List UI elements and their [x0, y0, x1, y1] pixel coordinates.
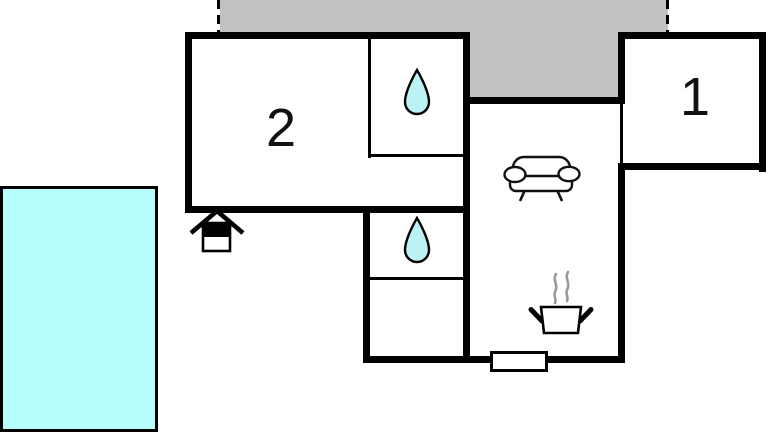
wall-bathroom-top-bottom — [368, 154, 465, 157]
wall-left-main — [185, 32, 192, 213]
wall-right-vertical-lower — [618, 163, 625, 363]
wall-center-vertical — [463, 32, 470, 363]
floor-plan: 2 1 — [0, 0, 768, 432]
entrance-house-icon — [188, 207, 246, 255]
wall-room1-top — [618, 32, 766, 39]
pot-body — [541, 307, 581, 333]
house-body-band — [203, 223, 230, 237]
steam-lines — [554, 274, 556, 303]
sofa-armrest — [505, 167, 526, 182]
swimming-pool — [0, 186, 158, 432]
wall-bottom-right-segment — [545, 356, 625, 363]
water-drop-shape — [405, 70, 429, 114]
wall-bathroom-bottom-bottom — [370, 277, 463, 280]
terrace-area-inner — [467, 0, 619, 101]
water-drop-icon — [401, 215, 433, 267]
wall-room1-bottom — [618, 163, 766, 170]
wall-room1-right — [759, 32, 766, 172]
wall-right-vertical-upper — [618, 32, 625, 104]
cooking-pot-icon — [526, 266, 596, 336]
wall-lower-left-vertical — [363, 206, 370, 363]
water-drop-shape — [405, 218, 429, 262]
terrace-dashed-boundary-left — [217, 0, 220, 34]
room-2-label: 2 — [245, 99, 317, 158]
sofa-icon — [500, 152, 582, 204]
wall-bathroom-top-left — [368, 39, 371, 158]
wall-terrace-bottom — [463, 97, 625, 104]
steam-lines — [566, 272, 568, 301]
room-1-label: 1 — [659, 68, 731, 127]
sofa-armrest — [559, 167, 580, 181]
wall-room1-living-partition — [620, 104, 623, 163]
wall-bottom-left-segment — [363, 356, 493, 363]
entrance-door-step — [490, 351, 548, 372]
wall-top-main — [185, 32, 470, 39]
terrace-dashed-boundary-right — [666, 0, 669, 34]
water-drop-icon — [401, 67, 433, 119]
